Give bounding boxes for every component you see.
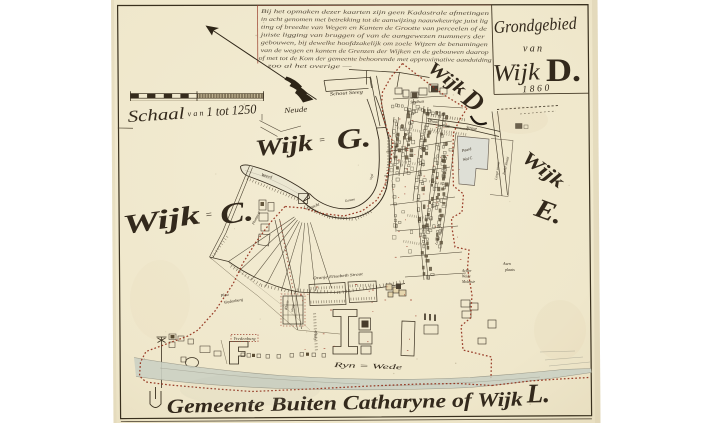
svg-text:plaats: plaats bbox=[504, 267, 515, 272]
svg-text:van: van bbox=[523, 44, 542, 55]
svg-text:Achter: Achter bbox=[461, 269, 472, 273]
svg-text:Wijk: Wijk bbox=[492, 59, 540, 87]
svg-text:G.: G. bbox=[335, 122, 372, 156]
svg-text:=: = bbox=[318, 135, 326, 147]
svg-text:Vredenburg: Vredenburg bbox=[234, 336, 256, 341]
svg-text:L.: L. bbox=[525, 378, 550, 409]
svg-text:D.: D. bbox=[546, 53, 581, 89]
svg-text:1 tot 1250: 1 tot 1250 bbox=[206, 101, 257, 119]
svg-text:C.: C. bbox=[218, 195, 255, 231]
svg-text:Asen: Asen bbox=[502, 261, 511, 266]
svg-text:Neude: Neude bbox=[283, 104, 309, 115]
svg-text:Stadhuis: Stadhuis bbox=[410, 99, 425, 105]
svg-text:Molenstr: Molenstr bbox=[461, 280, 476, 284]
svg-text:zoo al het overige —: zoo al het overige — bbox=[266, 63, 354, 70]
svg-text:Weide: Weide bbox=[462, 275, 471, 279]
svg-text:van: van bbox=[187, 108, 204, 118]
svg-text:Schaal: Schaal bbox=[127, 104, 186, 126]
